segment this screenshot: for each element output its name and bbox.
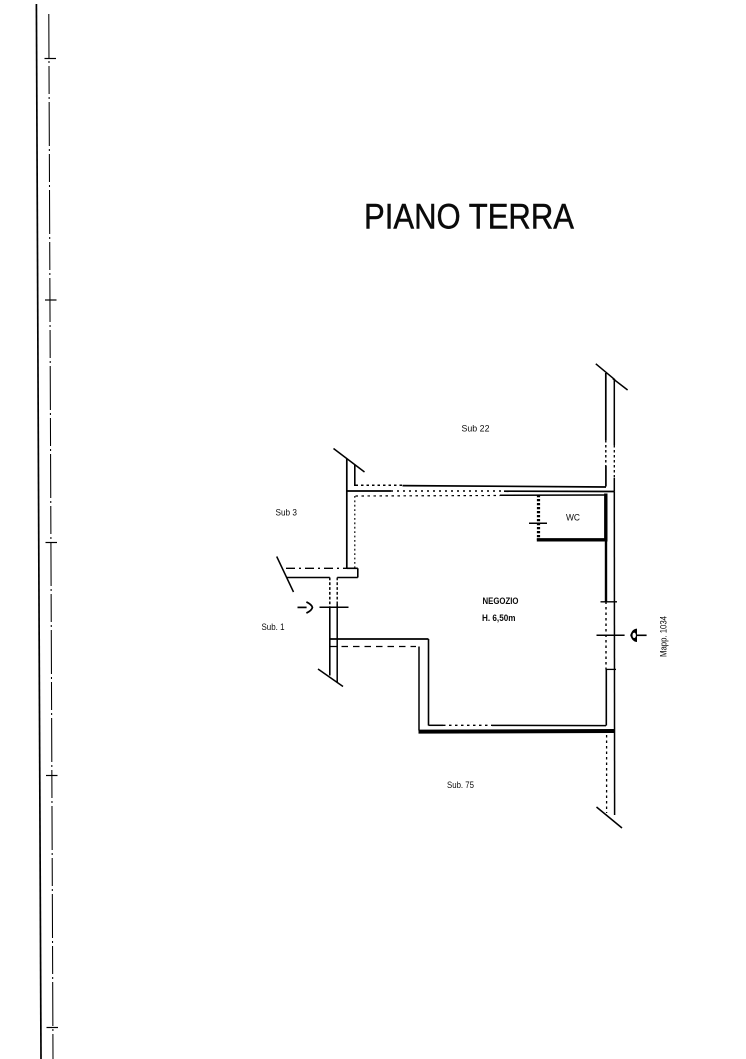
svg-text:Sub 22: Sub 22 bbox=[462, 424, 490, 435]
svg-text:Sub. 1: Sub. 1 bbox=[262, 622, 285, 633]
svg-text:PIANO TERRA: PIANO TERRA bbox=[364, 198, 575, 237]
svg-text:NEGOZIO: NEGOZIO bbox=[483, 596, 519, 606]
svg-text:Sub. 75: Sub. 75 bbox=[447, 780, 474, 791]
svg-text:H. 6,50m: H. 6,50m bbox=[482, 613, 516, 623]
svg-text:Sub 3: Sub 3 bbox=[276, 508, 298, 519]
svg-text:WC: WC bbox=[566, 513, 580, 523]
svg-text:Mapp. 1034: Mapp. 1034 bbox=[659, 616, 670, 657]
